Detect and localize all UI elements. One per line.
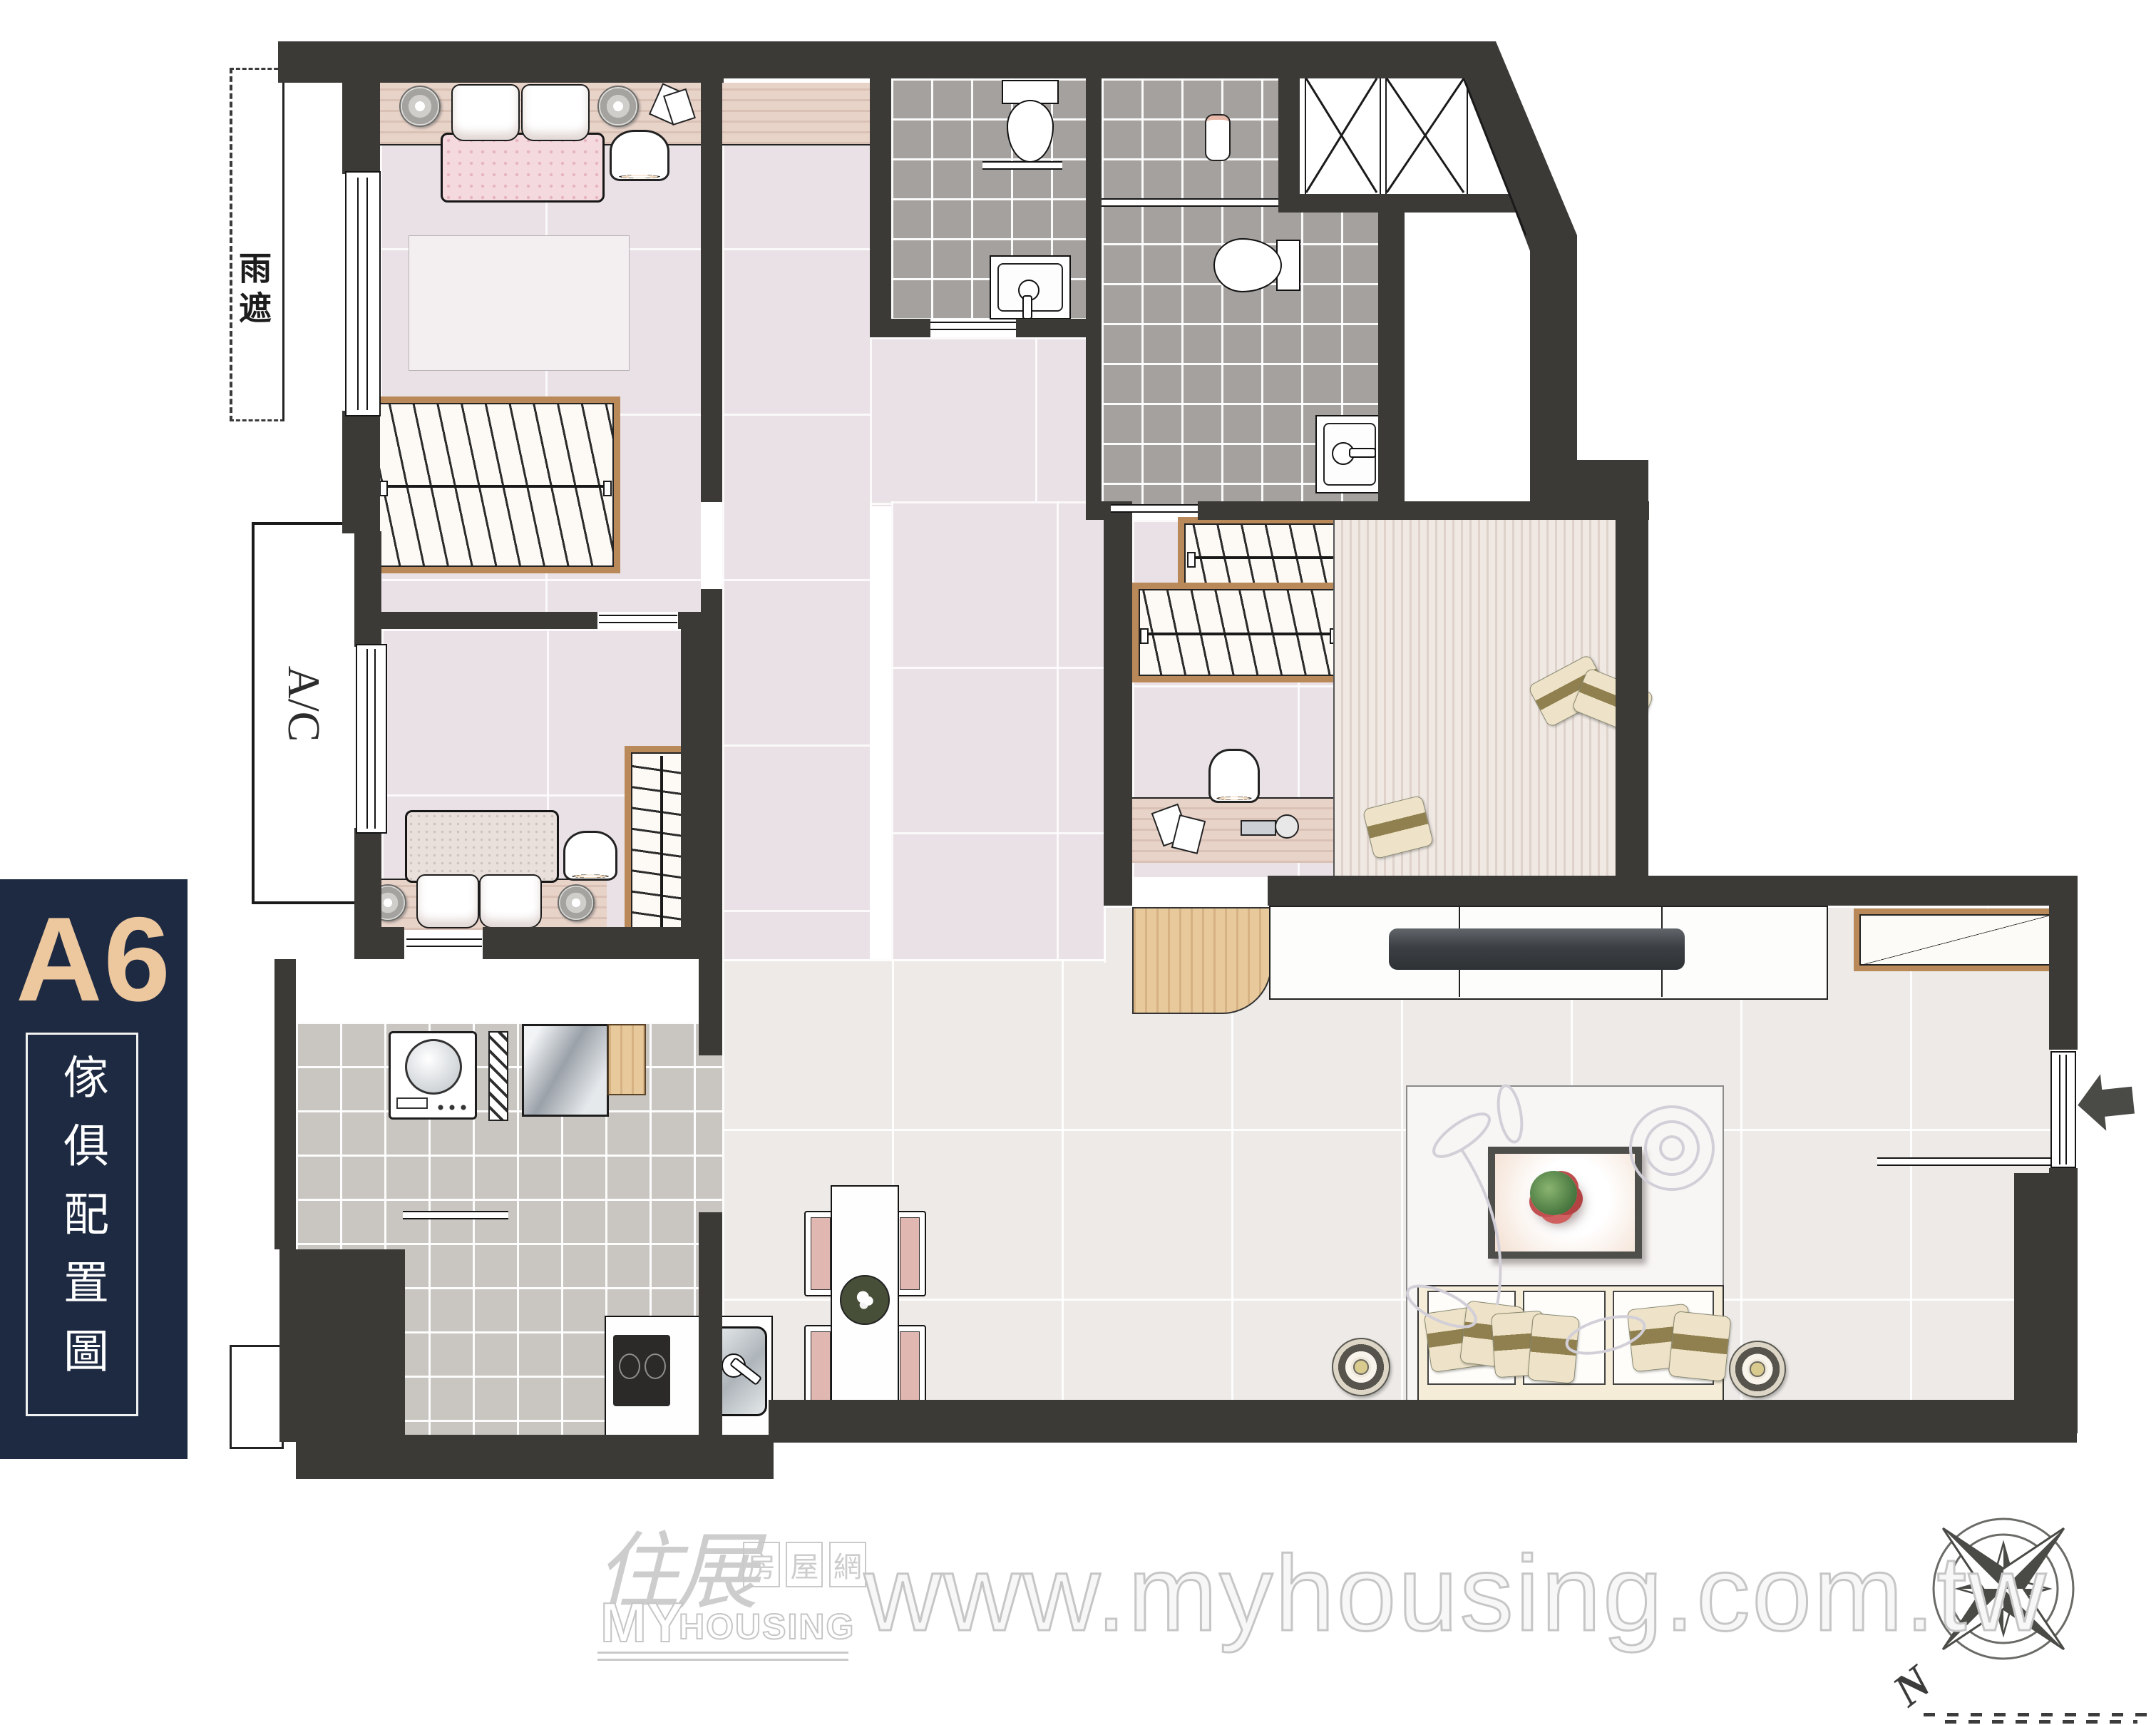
stove <box>613 1335 670 1406</box>
shower-partition <box>1102 198 1278 207</box>
shoe-cabinet <box>1854 908 2060 971</box>
wall <box>342 411 380 533</box>
wall <box>701 83 722 502</box>
pillow <box>416 874 479 928</box>
shelf-item-icon <box>1205 114 1231 161</box>
wall <box>681 629 722 928</box>
wall <box>1086 78 1102 506</box>
watermark-logo-rule <box>597 1659 848 1661</box>
entry-threshold <box>1877 1157 2053 1166</box>
towel-bar-icon <box>982 161 1062 170</box>
watermark-logo-char: 房 <box>743 1542 780 1587</box>
wall <box>2014 1173 2077 1431</box>
wall <box>1198 501 1649 520</box>
refrigerator <box>522 1024 609 1117</box>
clipped-text-fragment <box>1945 1720 2137 1724</box>
bathroom2-shower-floor <box>1102 78 1278 203</box>
entry-arrow-icon <box>2075 1071 2136 1134</box>
service-niche <box>230 1345 284 1449</box>
door-threshold <box>599 615 677 623</box>
closet <box>1132 583 1346 682</box>
phone-icon <box>1241 820 1276 836</box>
watermark-logo-housing: HOUSING <box>679 1606 855 1647</box>
kitchen-cabinet <box>607 1024 646 1095</box>
wall <box>699 959 722 1055</box>
wardrobe <box>371 396 620 573</box>
blanket <box>405 810 559 883</box>
pipe-shaft <box>1385 77 1468 197</box>
wall <box>1616 460 1648 906</box>
wall <box>1268 876 2077 906</box>
duvet <box>441 133 605 203</box>
wall <box>1278 78 1300 203</box>
watermark-logo-char: 屋 <box>786 1542 823 1587</box>
pillow <box>521 84 590 141</box>
unit-label: A6 <box>0 891 188 1028</box>
door-threshold <box>406 938 482 947</box>
pillow <box>479 874 542 928</box>
phone-dial-icon <box>1275 814 1299 839</box>
bedroom-rug <box>409 235 630 371</box>
table-lamp-icon <box>610 130 669 181</box>
compass-rose: N <box>1882 1483 2139 1725</box>
wall <box>354 927 404 959</box>
hatched-wall-stub <box>488 1031 508 1121</box>
wall <box>870 319 930 337</box>
watermark-logo-char: 網 <box>829 1542 866 1587</box>
wall <box>722 41 1496 78</box>
entry-wood-strip <box>1132 907 1272 1014</box>
plan-title: 傢俱配置圖 <box>49 1053 115 1396</box>
bedside-speaker-icon <box>558 884 595 921</box>
hallway-floor <box>870 337 1102 506</box>
wall <box>354 531 381 647</box>
window <box>345 171 381 416</box>
watermark-url: www.myhousing.com.tw <box>864 1532 2048 1655</box>
watermark-logo-site: 房 屋 網 <box>743 1542 866 1587</box>
plant-icon <box>1530 1171 1577 1215</box>
speaker-lamp-icon <box>1332 1338 1390 1396</box>
wall <box>342 41 380 174</box>
bedside-speaker-icon <box>399 86 441 127</box>
wall <box>279 1249 405 1442</box>
ac-label: A/C <box>277 654 330 754</box>
plan-title-box: 傢俱配置圖 <box>26 1033 138 1416</box>
clipped-text-fragment <box>1924 1713 2153 1716</box>
door-threshold <box>930 322 1016 330</box>
bedside-speaker-icon <box>597 86 639 127</box>
wall <box>1104 876 1132 906</box>
unit-panel: A6 傢俱配置圖 <box>0 879 188 1459</box>
wall <box>274 959 296 1249</box>
cushion <box>1527 1313 1580 1383</box>
watermark-logo-rule <box>597 1652 848 1654</box>
entry-door-leaf <box>2050 1051 2076 1168</box>
speaker-lamp-icon <box>1729 1341 1786 1398</box>
table-lamp-icon <box>563 831 617 881</box>
faucet-handle-icon <box>1349 448 1376 458</box>
faucet-handle-icon <box>1022 295 1032 319</box>
rain-shelter-label: 雨遮 <box>235 251 277 331</box>
floor-plan-page: 雨遮 A/C <box>0 0 2156 1725</box>
tv <box>1389 928 1685 970</box>
wall <box>769 1400 2077 1443</box>
wall <box>1016 319 1102 337</box>
pillow <box>451 84 520 141</box>
centerpiece-plate <box>840 1275 890 1325</box>
window <box>356 644 387 834</box>
wall <box>1104 501 1132 879</box>
wall <box>701 589 722 629</box>
wall <box>870 78 891 337</box>
desk-lamp-icon <box>1208 749 1260 803</box>
wall <box>1378 203 1405 506</box>
compass-north-label: N <box>1883 1654 1942 1716</box>
watermark-logo-cjk: 住展 <box>595 1503 755 1625</box>
cushion <box>1668 1311 1731 1382</box>
wall <box>699 1212 722 1444</box>
sliding-door-track <box>403 1211 508 1219</box>
corridor-floor <box>891 501 1104 1000</box>
wall <box>354 612 597 629</box>
wall <box>483 927 722 959</box>
wall <box>1278 194 1533 213</box>
rain-shelter-strip <box>230 68 284 421</box>
pipe-shaft <box>1305 77 1381 197</box>
door-threshold <box>1111 504 1198 513</box>
washing-machine <box>389 1031 477 1120</box>
watermark-logo-my: MY <box>600 1590 684 1655</box>
